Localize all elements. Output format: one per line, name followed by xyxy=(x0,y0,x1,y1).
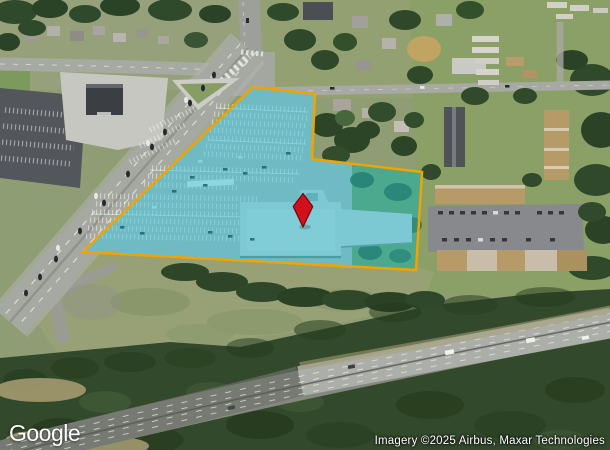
satellite-canvas[interactable] xyxy=(0,0,610,450)
map-viewport[interactable]: Google Imagery ©2025 Airbus, Maxar Techn… xyxy=(0,0,610,450)
imagery-attribution: Imagery ©2025 Airbus, Maxar Technologies xyxy=(375,435,605,447)
google-logo[interactable]: Google xyxy=(9,420,80,447)
marker-shadow xyxy=(299,225,311,230)
